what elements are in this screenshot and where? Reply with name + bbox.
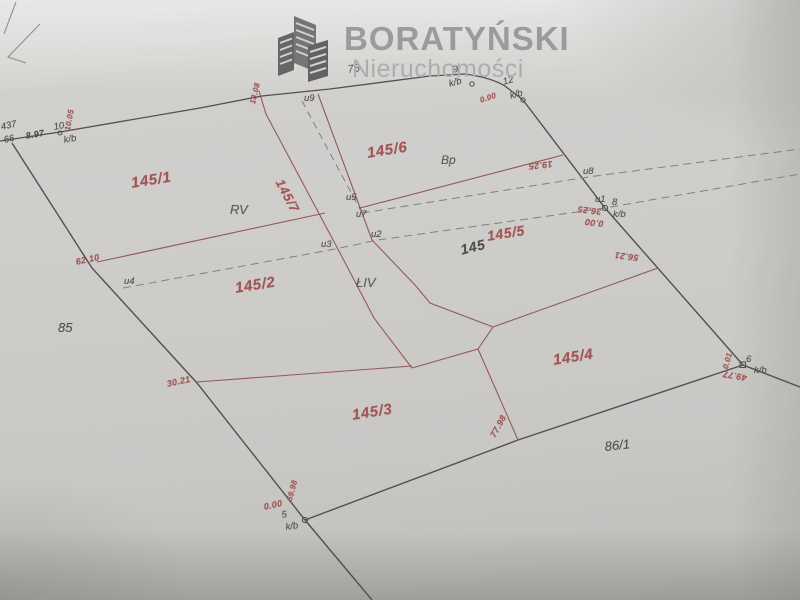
point-label-u4: u4 [124, 277, 135, 287]
pencil-mark [8, 24, 40, 63]
point-label-u7: u7 [356, 210, 367, 220]
parcel-label-86-1: 86/1 [604, 437, 631, 453]
south-boundary-line [305, 365, 743, 520]
soil-label-bp: Bp [441, 154, 456, 166]
point-label-u5: u5 [346, 193, 357, 203]
soil-label-rv: RV [230, 203, 248, 216]
measurement-56-21: 56.21 [614, 250, 639, 262]
landuse-label-kb-5: k/b [754, 366, 767, 376]
dashed-line-u4-u1 [123, 174, 800, 288]
dashed-line-u7-u8 [362, 149, 800, 213]
map-linework [0, 0, 800, 600]
pencil-mark [4, 2, 16, 34]
measurement-0-00-b: 0.00 [584, 217, 604, 228]
agency-logo: BORATYŃSKI Nieruchomości [270, 6, 560, 90]
point-label-8: 8 [612, 198, 617, 208]
soil-label-liv: ŁIV [356, 276, 376, 289]
point-label-u9: u9 [304, 94, 315, 104]
landuse-label-kb-4: k/b [613, 210, 626, 220]
point-label-u8: u8 [583, 167, 594, 177]
access-road-left-line [259, 91, 412, 368]
division-line-145-2-145-3 [197, 366, 412, 382]
logo-name-text: BORATYŃSKI [344, 20, 570, 58]
logo-subtitle-text: Nieruchomości [352, 55, 524, 84]
measurement-19-25: 19.25 [528, 159, 553, 170]
access-road-end-line [412, 327, 493, 368]
division-line-145-1-145-2 [97, 213, 325, 262]
point-label-u3: u3 [321, 240, 332, 250]
buildings-icon [272, 10, 338, 88]
landuse-label-kb-6: k/b [285, 521, 299, 532]
access-road-right-line [318, 94, 493, 327]
cadastral-map-photo: 437 66 8.97 10 k/b 10.05 18.08 u9 76 9 k… [0, 0, 800, 600]
landuse-label-kb-1: k/b [63, 134, 77, 146]
measurement-36-25: 36.25 [577, 204, 602, 216]
point-label-5: 5 [281, 510, 288, 520]
point-label-u2: u2 [371, 230, 382, 240]
east-boundary-line [523, 100, 800, 387]
parcel-label-85: 85 [58, 321, 72, 334]
point-label-6: 6 [746, 355, 751, 365]
point-label-66: 66 [3, 134, 15, 145]
point-label-u1: u1 [595, 195, 606, 205]
division-line-145-5-145-4 [493, 268, 658, 327]
